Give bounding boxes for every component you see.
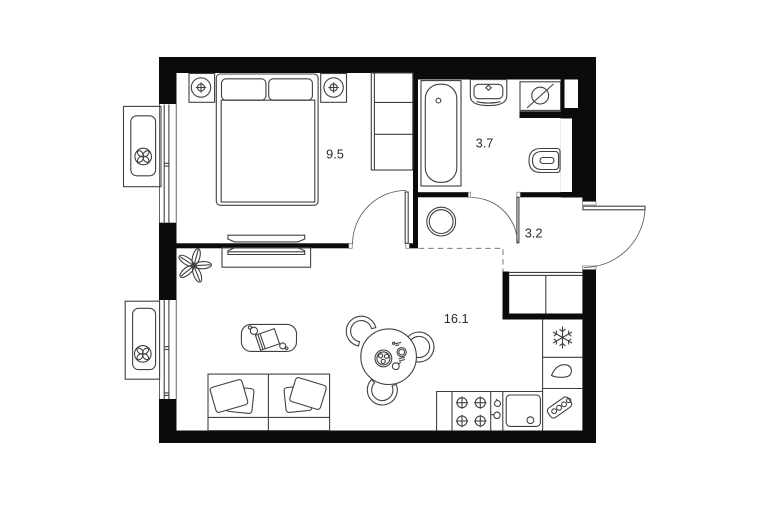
svg-text:3.2: 3.2 <box>525 226 543 241</box>
svg-text:9.5: 9.5 <box>326 147 344 162</box>
svg-text:16.1: 16.1 <box>444 311 469 326</box>
svg-text:3.7: 3.7 <box>476 136 494 151</box>
